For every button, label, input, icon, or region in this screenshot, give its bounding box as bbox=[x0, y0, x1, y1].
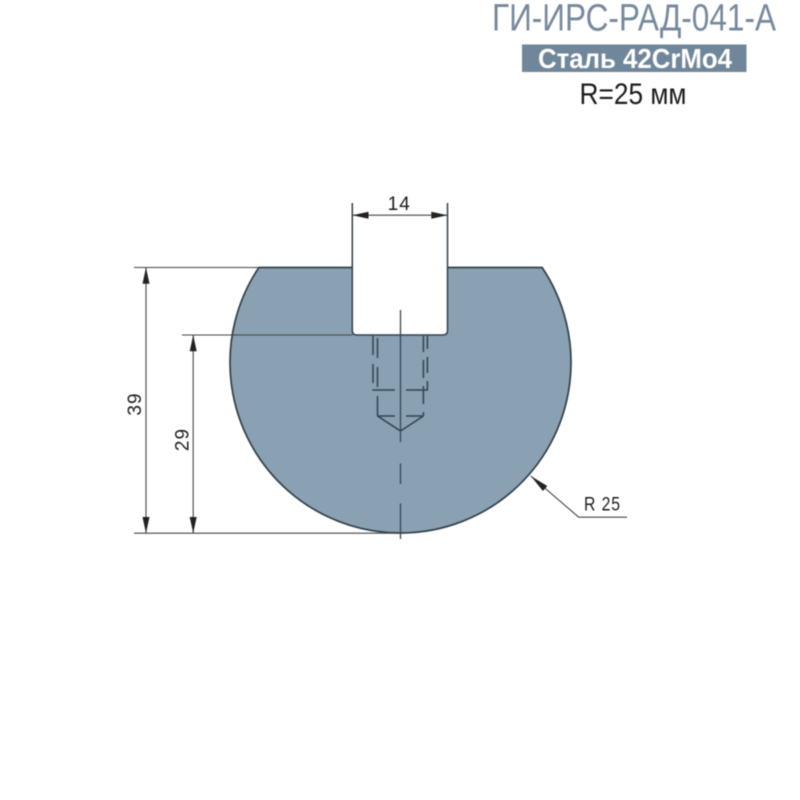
svg-text:R=25 мм: R=25 мм bbox=[580, 78, 687, 111]
svg-text:ГИ-ИРС-РАД-041-А: ГИ-ИРС-РАД-041-А bbox=[492, 0, 777, 40]
svg-text:14: 14 bbox=[388, 194, 411, 215]
svg-text:39: 39 bbox=[125, 392, 146, 415]
svg-text:Сталь 42CrMo4: Сталь 42CrMo4 bbox=[538, 43, 733, 74]
svg-text:29: 29 bbox=[173, 428, 194, 451]
svg-text:R 25: R 25 bbox=[584, 495, 621, 516]
